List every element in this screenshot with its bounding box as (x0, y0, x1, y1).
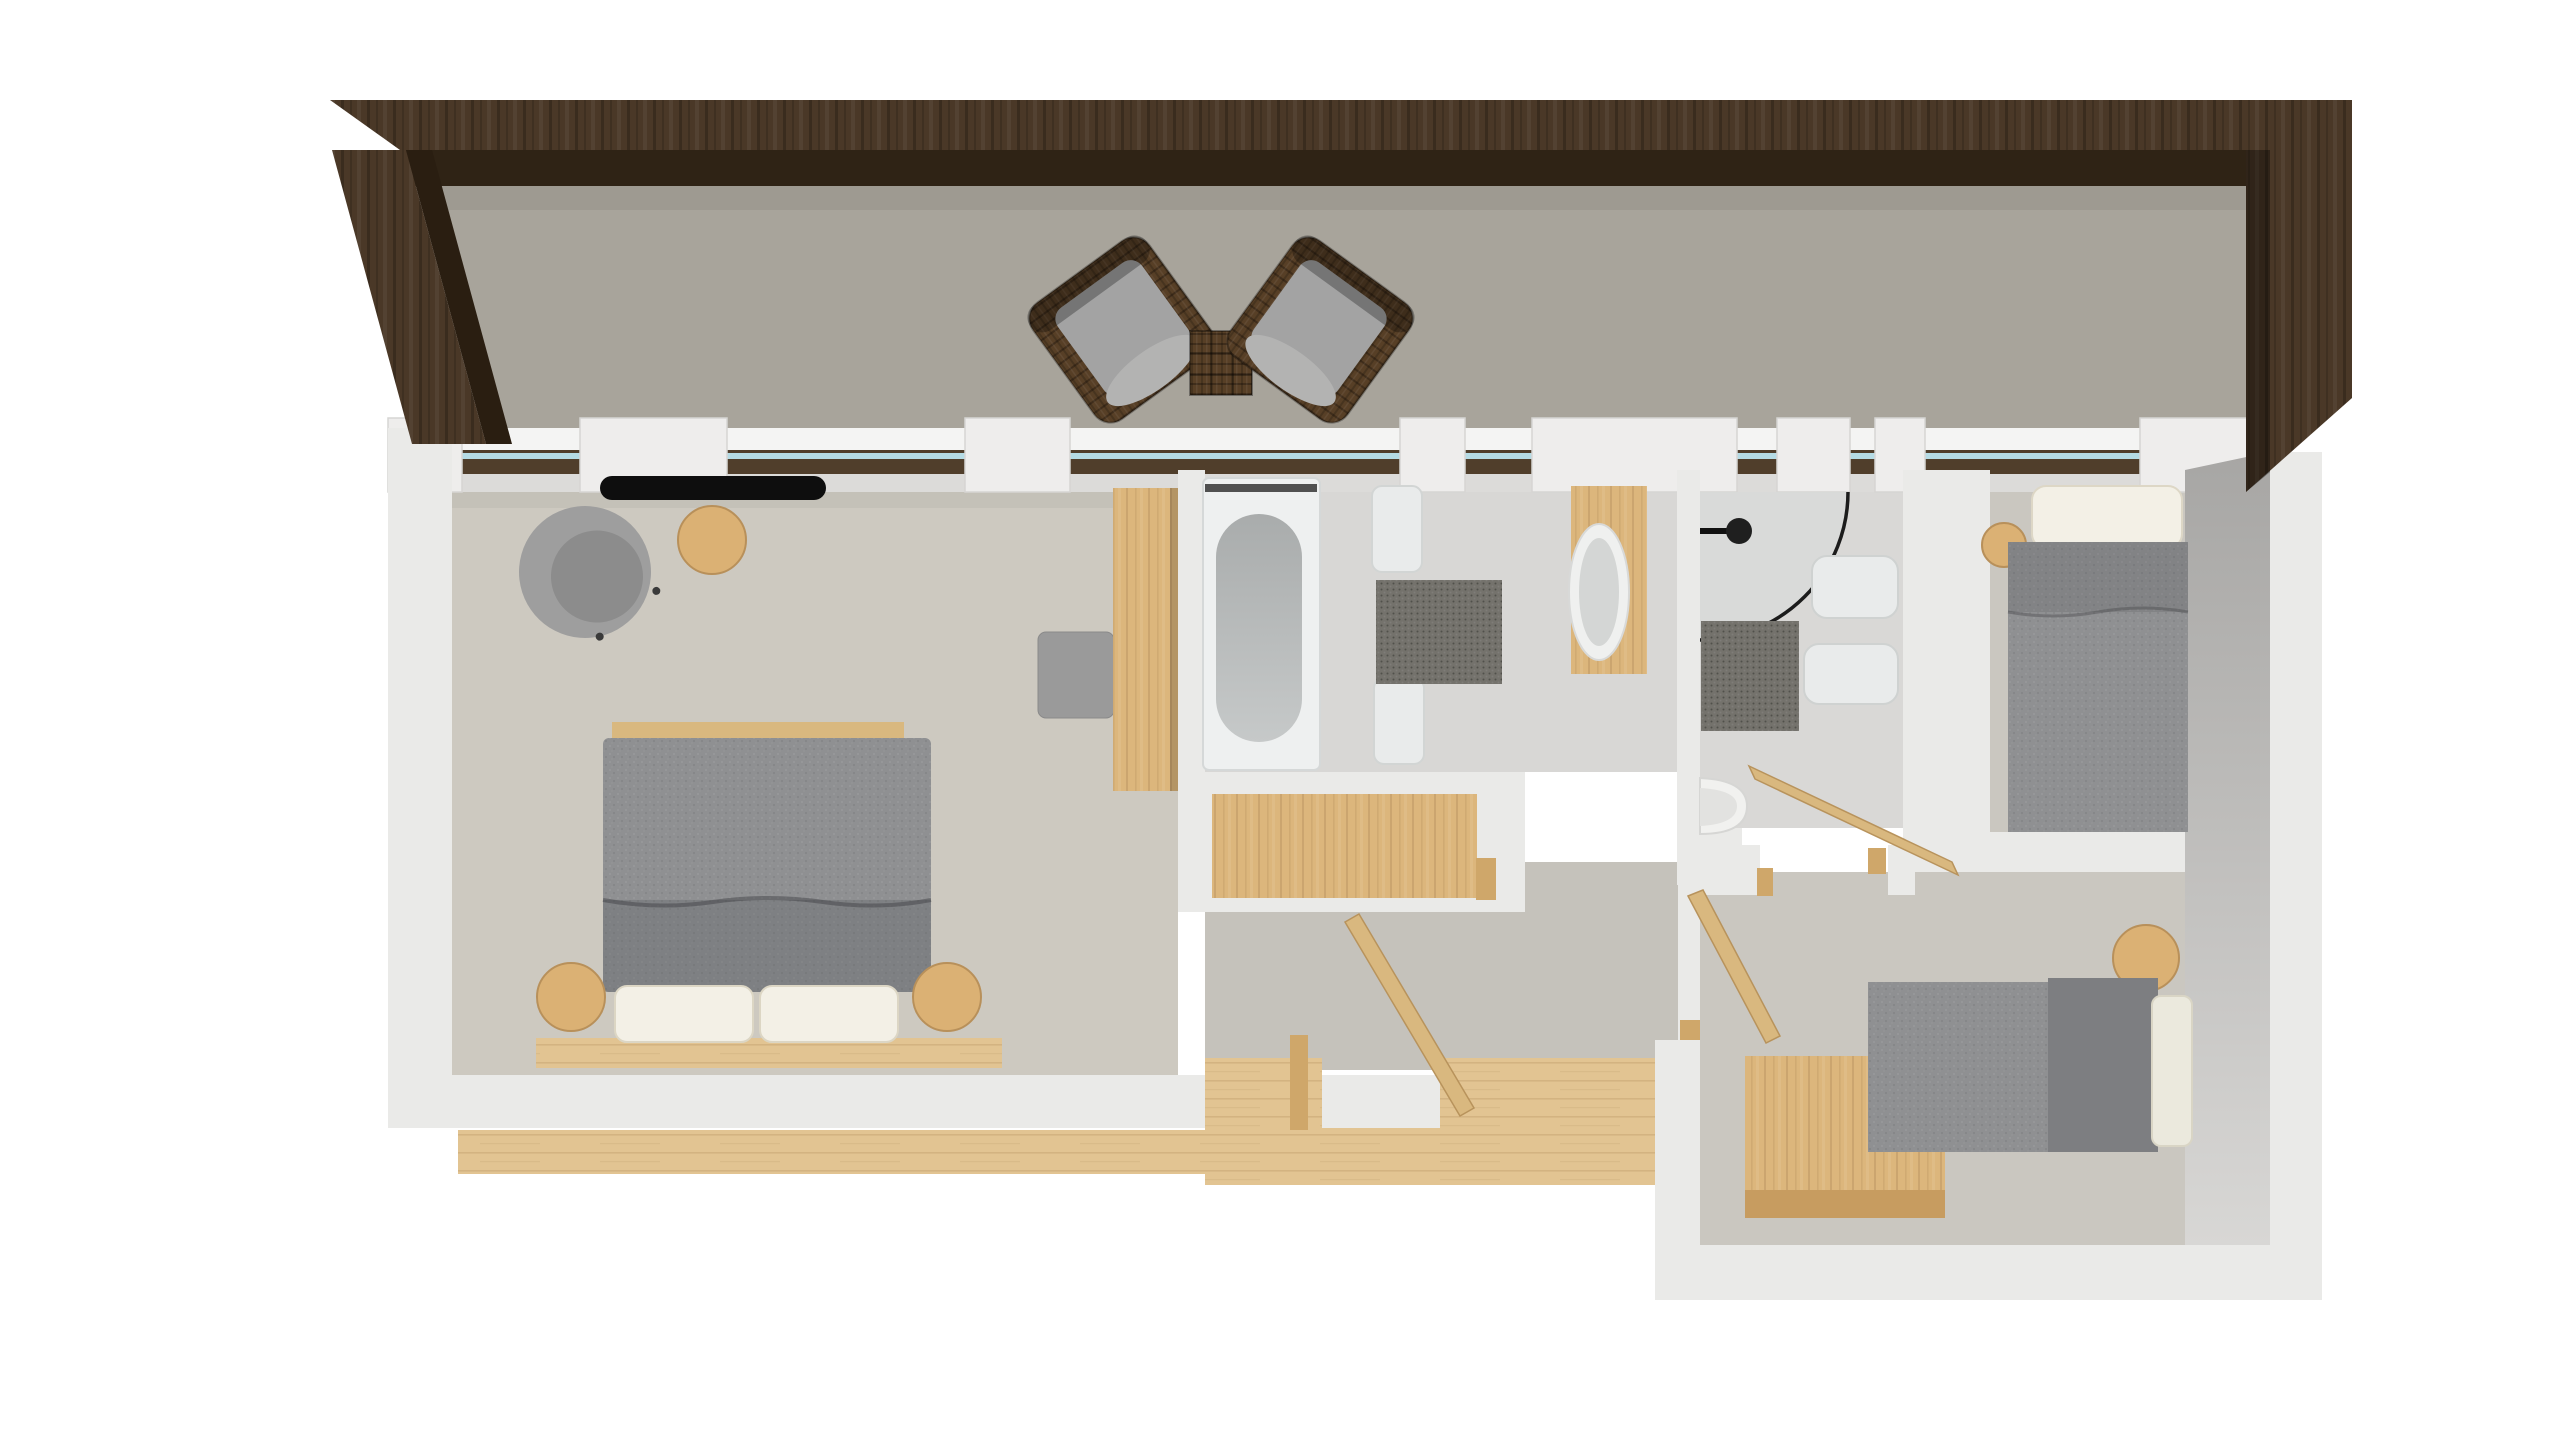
door-jamb (1868, 848, 1886, 874)
vanity-wood-panel (1212, 794, 1477, 898)
wardrobe-panel (1113, 488, 1178, 791)
shower-mat (1701, 621, 1799, 731)
wall-pier (1400, 418, 1465, 492)
sanitary-fixture-bottom (1804, 644, 1898, 704)
wardrobe-edge-shadow (1170, 488, 1178, 791)
bath-bench-top (1372, 486, 1422, 572)
single-bed-pillow (2032, 486, 2182, 548)
black-wall-desk (600, 476, 826, 500)
single-bed-mattress-end (2152, 996, 2192, 1146)
right-wall-inner-face (2185, 452, 2270, 1245)
window (1465, 428, 1532, 492)
bed-pillow-right (760, 986, 898, 1042)
floorplan-page (0, 0, 2560, 1440)
terrace (430, 186, 2246, 431)
washbasin-inner (1579, 538, 1619, 646)
bathtub-window-shadow (1205, 484, 1317, 492)
bath-bench-bottom (1374, 678, 1424, 764)
bedroom-bottom-right-top-wall-left (1700, 845, 1760, 895)
terrace-beam-shadow (430, 186, 2246, 210)
door-jamb (1476, 858, 1496, 900)
shower-head (1726, 518, 1752, 544)
left-exterior-wall (388, 428, 452, 1128)
shower-right-wall (1903, 470, 1990, 872)
wall-pier (965, 418, 1070, 492)
wall-pier (1777, 418, 1850, 492)
nightstand-left (537, 963, 605, 1031)
window (1850, 428, 1875, 492)
hallway-wood-right (1440, 1058, 1655, 1128)
round-side-table (678, 506, 746, 574)
bottom-wall-entry-right-segment (1322, 1075, 1440, 1128)
bottom-exterior-wall-right (1655, 1245, 2322, 1300)
bed-folded-blanket (603, 900, 931, 992)
bottom-exterior-wall-left (388, 1075, 1205, 1128)
bathtub-basin (1216, 514, 1302, 742)
wall-pier (1532, 418, 1737, 492)
right-exterior-wall (2270, 452, 2322, 1300)
window (1737, 428, 1777, 492)
bedroom-top-right (1982, 486, 2188, 832)
beam-right-inner-shadow (2246, 150, 2270, 492)
bed-pillow-left (615, 986, 753, 1042)
bathroom-shower-wall (1677, 470, 1700, 885)
desk-front (1745, 1190, 1945, 1218)
single-bed-cushion (2048, 978, 2158, 1152)
door-jamb (1290, 1035, 1308, 1130)
door-jamb (1757, 868, 1773, 896)
sanitary-fixture-top (1812, 556, 1898, 618)
single-bed-fold (2008, 542, 2188, 612)
door-jamb (1680, 1020, 1700, 1040)
vestibule-wood (1205, 1128, 1655, 1185)
beam-front-face (400, 150, 2246, 186)
nightstand-right (913, 963, 981, 1031)
bath-mat (1376, 580, 1502, 684)
beam-top-face (330, 100, 2352, 150)
ottoman (1038, 632, 1114, 718)
floorplan-render (0, 0, 2560, 1440)
hall-cross-wall (1678, 862, 1700, 1040)
